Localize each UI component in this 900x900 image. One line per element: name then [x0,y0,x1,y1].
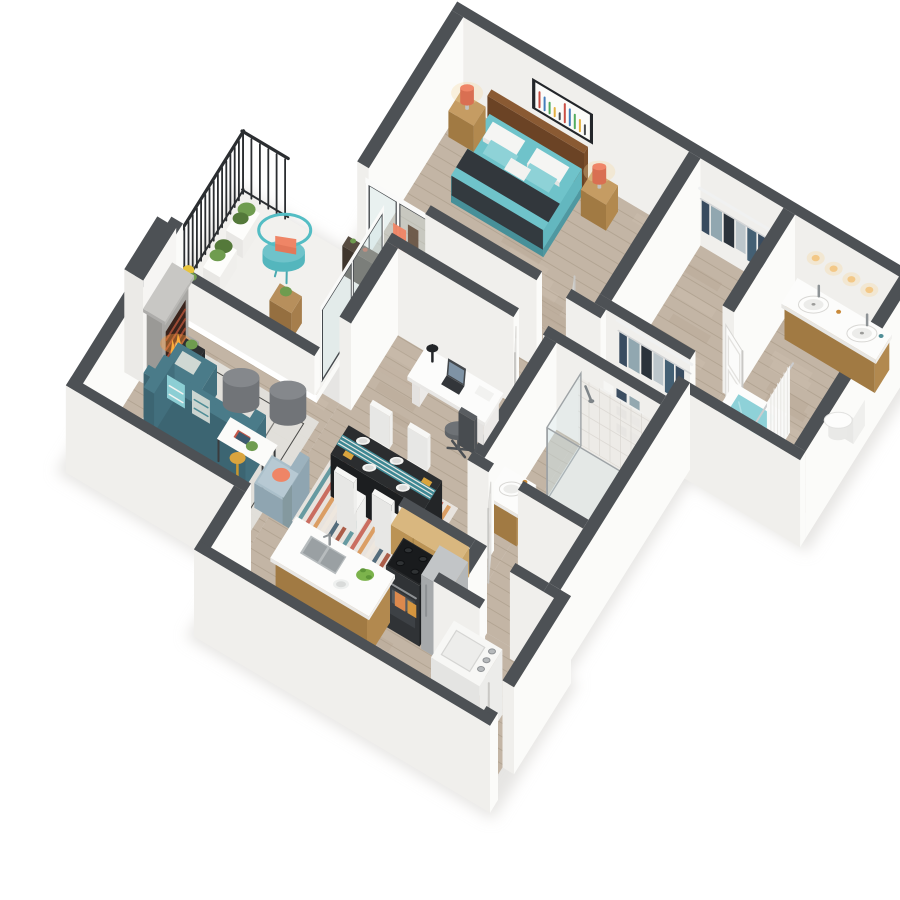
floor-plan-stage [0,0,900,900]
floor-plan-3d-svg [0,0,900,900]
